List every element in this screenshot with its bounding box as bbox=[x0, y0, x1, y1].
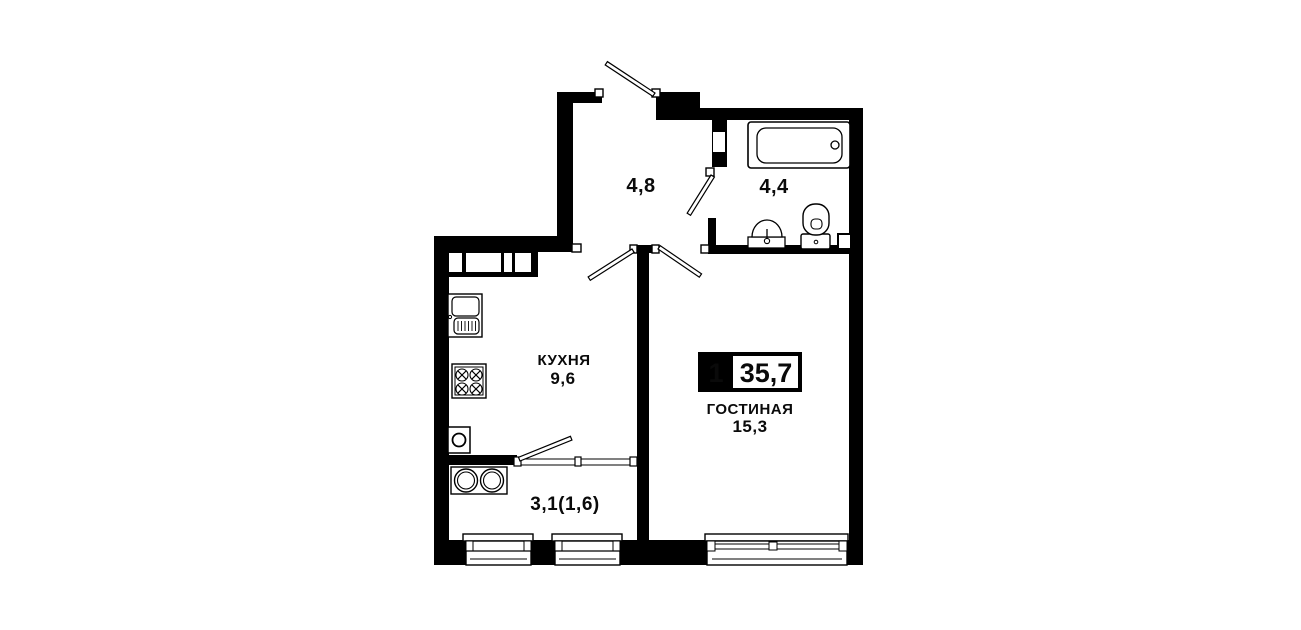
living-room-name-label: ГОСТИНАЯ bbox=[707, 401, 794, 418]
entry-wall-right bbox=[656, 92, 700, 120]
bathtub-icon bbox=[748, 122, 850, 168]
balcony-kitchen-window bbox=[514, 457, 637, 466]
badge-total-area: 35,7 bbox=[740, 358, 793, 388]
washing-machine-icon bbox=[448, 427, 470, 453]
hallway-area-label: 4,8 bbox=[626, 175, 655, 197]
kitchen-door-icon bbox=[572, 244, 637, 280]
badge-room-count: 1 bbox=[708, 358, 723, 388]
top-wall-bathroom bbox=[698, 108, 863, 120]
right-wall bbox=[849, 108, 863, 565]
balcony-area-label: 3,1(1,6) bbox=[530, 494, 599, 515]
laundry-tubs-icon bbox=[451, 467, 507, 494]
living-room-door-icon bbox=[652, 245, 709, 277]
kitchen-sink-icon bbox=[448, 294, 482, 337]
living-room-area-label: 15,3 bbox=[732, 417, 767, 436]
kitchen-top-wall bbox=[434, 236, 573, 252]
hallway-left-wall bbox=[557, 92, 573, 252]
bathroom-area-label: 4,4 bbox=[759, 176, 789, 198]
left-wall bbox=[434, 236, 449, 565]
bathroom-corner-niche bbox=[838, 234, 851, 249]
floorplan: 1 35,7 4,8 4,4 КУХНЯ 9,6 ГОСТИНАЯ 15,3 3… bbox=[0, 0, 1301, 630]
floorplan-canvas: 1 35,7 4,8 4,4 КУХНЯ 9,6 ГОСТИНАЯ 15,3 3… bbox=[0, 0, 1301, 630]
balcony-window-2 bbox=[552, 534, 622, 565]
sink-icon bbox=[748, 220, 785, 248]
central-wall bbox=[637, 248, 649, 540]
bathroom-door-icon bbox=[687, 168, 714, 215]
toilet-icon bbox=[801, 204, 830, 249]
stove-icon bbox=[452, 364, 486, 398]
balcony-divider-wall bbox=[434, 455, 517, 465]
entry-door-icon bbox=[595, 62, 660, 97]
living-room-window bbox=[705, 534, 848, 565]
apartment-badge: 1 35,7 bbox=[698, 352, 802, 392]
kitchen-name-label: КУХНЯ bbox=[538, 352, 591, 369]
balcony-door-icon bbox=[519, 436, 572, 461]
kitchen-area-label: 9,6 bbox=[550, 369, 575, 388]
balcony-window-1 bbox=[463, 534, 533, 565]
